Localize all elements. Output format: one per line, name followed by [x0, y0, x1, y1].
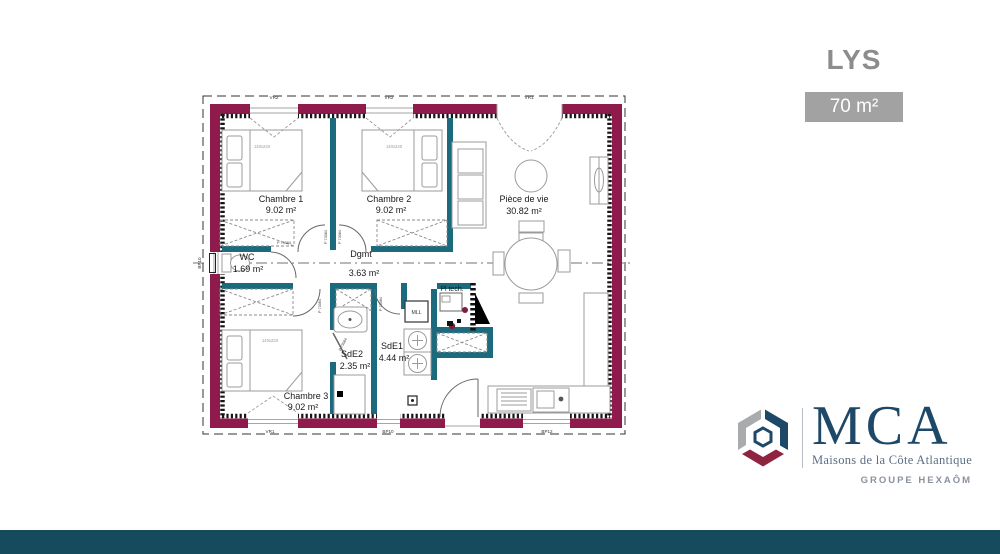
svg-text:9.02 m²: 9.02 m² — [376, 205, 407, 215]
dining-table — [493, 233, 570, 303]
svg-text:P 73084: P 73084 — [318, 299, 322, 313]
svg-text:9.02 m²: 9.02 m² — [288, 402, 319, 412]
svg-text:BP10: BP10 — [382, 429, 394, 434]
svg-text:VR2: VR2 — [385, 95, 394, 100]
svg-text:VR1: VR1 — [525, 95, 534, 100]
brand-block: MCA Maisons de la Côte Atlantique GROUPE… — [733, 404, 972, 486]
bed-chambre-2: 140x220 — [362, 130, 442, 191]
room-label-sde1: SdE1 — [381, 341, 403, 351]
svg-text:1.69 m²: 1.69 m² — [233, 264, 264, 274]
room-label-pl-tech: Pl tech. — [440, 286, 463, 293]
kitchen-sink — [533, 388, 569, 412]
svg-text:VR1: VR1 — [266, 429, 275, 434]
shower-sde2 — [334, 375, 365, 414]
svg-text:P 73084: P 73084 — [379, 297, 383, 311]
room-label-chambre1: Chambre 1 — [259, 194, 304, 204]
room-label-wc: WC — [240, 252, 255, 262]
washing-machine: MLL — [405, 301, 428, 322]
svg-text:P 73084: P 73084 — [338, 230, 342, 244]
console-unit — [590, 157, 608, 204]
room-label-chambre3: Chambre 3 — [284, 391, 329, 401]
svg-text:9.02 m²: 9.02 m² — [266, 205, 297, 215]
room-label-piece-de-vie: Pièce de vie — [499, 194, 548, 204]
room-label-dgmt: Dgmt — [350, 249, 372, 259]
svg-text:3.63 m²: 3.63 m² — [349, 268, 380, 278]
svg-text:BP10: BP10 — [197, 257, 202, 269]
svg-text:140x220: 140x220 — [262, 338, 279, 343]
brand-subtitle: Maisons de la Côte Atlantique — [812, 453, 972, 468]
washbasin-sde2 — [334, 307, 367, 332]
svg-text:VR2: VR2 — [270, 95, 279, 100]
bed-chambre-3: 140x220 — [222, 330, 302, 391]
sofa — [452, 142, 486, 228]
washbasins-sde1 — [404, 329, 431, 375]
svg-text:MLL: MLL — [411, 310, 421, 316]
tech-equipment — [440, 293, 490, 329]
svg-text:P 73084: P 73084 — [277, 241, 291, 245]
svg-text:140x220: 140x220 — [386, 144, 403, 149]
room-label-sde2: SdE2 — [341, 349, 363, 359]
svg-text:30.82 m²: 30.82 m² — [506, 206, 542, 216]
brand-group-label: GROUPE HEXAÔM — [812, 475, 972, 486]
svg-text:P 73084: P 73084 — [324, 230, 328, 244]
brand-wordmark: MCA — [812, 404, 972, 450]
room-label-chambre2: Chambre 2 — [367, 194, 412, 204]
svg-text:BP12: BP12 — [541, 429, 553, 434]
kitchen-counter — [488, 293, 610, 413]
bed-chambre-1: 140x220 — [222, 130, 302, 191]
floor-drain — [408, 396, 417, 405]
svg-text:4.44 m²: 4.44 m² — [379, 353, 410, 363]
svg-text:2.35 m²: 2.35 m² — [340, 361, 371, 371]
footer-band — [0, 530, 1000, 554]
svg-text:140x220: 140x220 — [254, 144, 271, 149]
page: LYS 70 m² — [0, 0, 1000, 554]
brand-divider — [802, 408, 803, 468]
mca-cube-logo — [733, 404, 793, 470]
